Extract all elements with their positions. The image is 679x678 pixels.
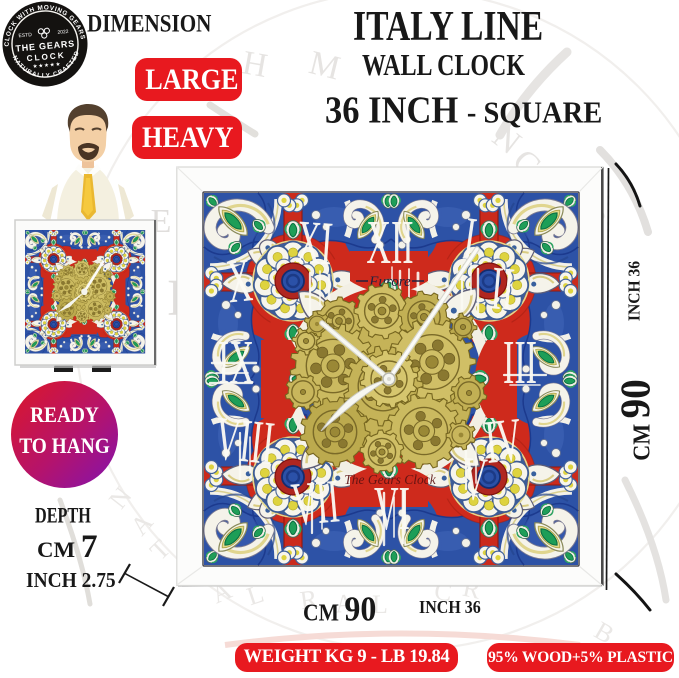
svg-text:V: V [460, 443, 489, 514]
svg-text:VII: VII [289, 466, 342, 539]
svg-text:H: H [240, 44, 271, 85]
svg-text:IV: IV [482, 404, 525, 477]
svg-text:III: III [503, 327, 537, 396]
svg-text:XI: XI [294, 206, 335, 278]
svg-text:M: M [305, 44, 343, 87]
svg-text:The Gears Clock: The Gears Clock [344, 472, 436, 487]
svg-text:VIII: VIII [212, 403, 278, 478]
svg-text:N: N [103, 481, 138, 514]
svg-text:XII: XII [366, 207, 413, 276]
svg-text:2022: 2022 [57, 29, 69, 36]
svg-text:ESTD: ESTD [18, 32, 32, 39]
